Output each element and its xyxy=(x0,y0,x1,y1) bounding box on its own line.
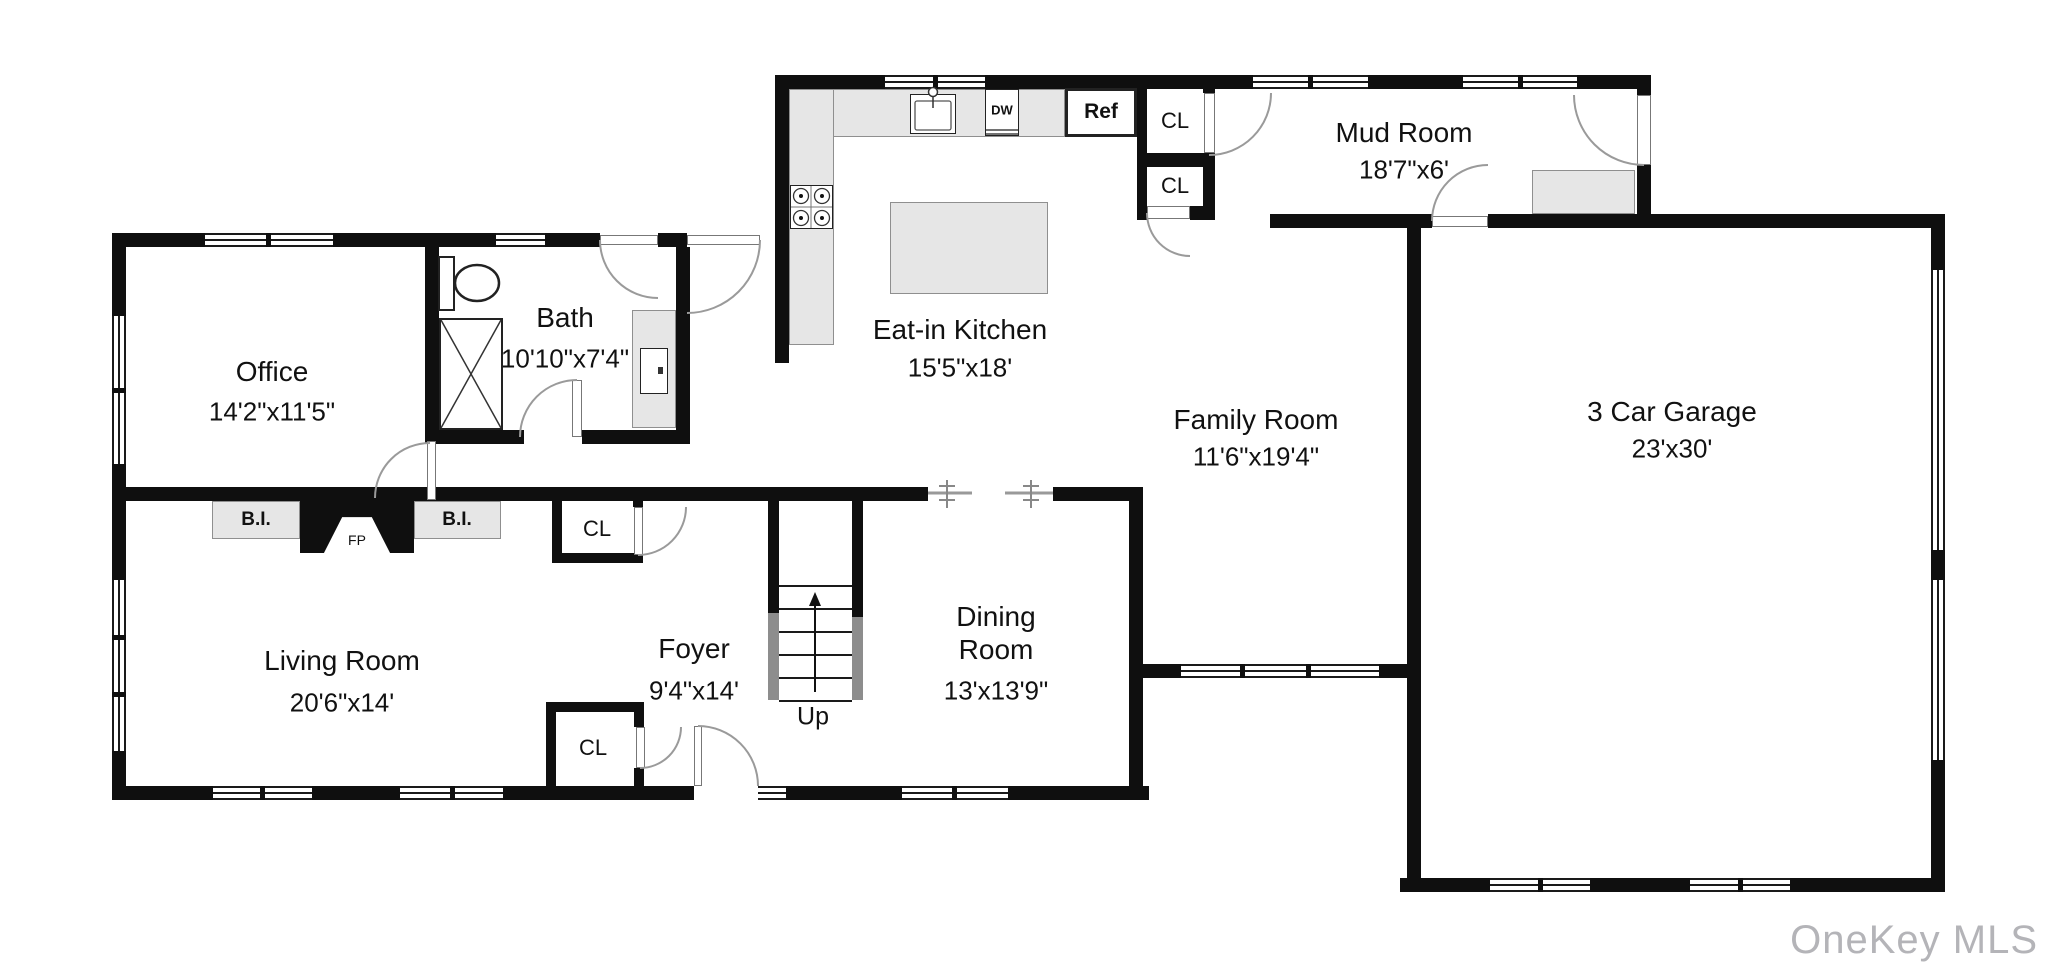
window-divider xyxy=(1240,664,1245,678)
closet-wall xyxy=(634,702,644,727)
window-divider xyxy=(1308,75,1313,89)
stair-wall xyxy=(768,501,779,613)
wall xyxy=(1129,487,1143,800)
door-swing-arc xyxy=(640,727,681,768)
room-dims-office: 14'2"x11'5" xyxy=(209,397,335,428)
door-swing-arc xyxy=(1574,95,1644,165)
room-label-family: Family Room xyxy=(1174,404,1339,436)
window-divider xyxy=(1518,75,1523,89)
wall xyxy=(1407,214,1421,892)
room-dims-bath: 10'10"x7'4" xyxy=(501,344,629,375)
door-leaf xyxy=(634,507,643,555)
stairs xyxy=(779,585,852,702)
window xyxy=(112,580,126,751)
door-leaf xyxy=(636,727,645,768)
closet-wall xyxy=(552,553,643,563)
window-divider xyxy=(450,786,455,800)
stair-railing xyxy=(852,617,863,700)
cased-opening xyxy=(928,487,1053,501)
room-label-dining2: Room xyxy=(959,634,1034,666)
door-swing-arc xyxy=(638,507,686,555)
room-label-dining: Dining xyxy=(956,601,1035,633)
room-label-living: Living Room xyxy=(264,645,420,677)
window-divider xyxy=(1538,878,1543,892)
closet-wall xyxy=(634,768,644,786)
window-divider xyxy=(952,786,957,800)
front-door-leaf xyxy=(694,726,702,786)
door-opening xyxy=(694,786,758,800)
sink xyxy=(910,94,956,134)
window xyxy=(1181,664,1379,678)
window-divider xyxy=(260,786,265,800)
toilet-tank xyxy=(439,257,454,310)
door-swing-arc xyxy=(698,726,758,786)
room-dims-kitchen: 15'5"x18' xyxy=(908,353,1012,384)
room-label-foyer: Foyer xyxy=(658,633,730,665)
door-leaf xyxy=(1147,206,1190,219)
room-label-office: Office xyxy=(236,356,309,388)
stairs-up-label: Up xyxy=(797,703,829,732)
door-leaf xyxy=(1204,93,1215,153)
door-swing-arc xyxy=(1209,93,1271,155)
dishwasher-label: DW xyxy=(991,103,1013,118)
room-label-kitchen: Eat-in Kitchen xyxy=(873,314,1047,346)
room-label-garage: 3 Car Garage xyxy=(1587,396,1757,428)
door-leaf xyxy=(427,441,436,500)
wall xyxy=(1270,214,1945,228)
window-divider xyxy=(1738,878,1743,892)
window xyxy=(1931,580,1945,760)
room-dims-foyer: 9'4"x14' xyxy=(649,676,739,707)
closet-label: CL xyxy=(583,516,611,542)
fireplace-label: FP xyxy=(348,532,366,548)
plan-symbols xyxy=(0,0,2048,966)
watermark: OneKey MLS xyxy=(1790,918,2038,963)
door-swing-arc xyxy=(520,380,577,437)
room-dims-family: 11'6"x19'4" xyxy=(1193,442,1319,473)
window-divider xyxy=(112,635,126,640)
floor-plan: Office 14'2"x11'5" Bath 10'10"x7'4" Eat-… xyxy=(0,0,2048,966)
window xyxy=(1931,270,1945,550)
window-divider xyxy=(112,388,126,393)
shower xyxy=(439,318,503,430)
door-swing-arc xyxy=(687,240,760,313)
cooktop xyxy=(790,185,833,229)
stair-wall xyxy=(852,501,863,617)
door-leaf xyxy=(1637,95,1651,165)
kitchen-island xyxy=(890,202,1048,294)
bath-vanity-sink xyxy=(640,348,668,394)
door-leaf xyxy=(572,380,582,437)
room-dims-dining: 13'x13'9" xyxy=(944,676,1048,707)
closet-label: CL xyxy=(1161,173,1189,199)
closet-wall xyxy=(546,702,556,786)
room-dims-living: 20'6"x14' xyxy=(290,688,394,719)
closet-label: CL xyxy=(1161,108,1189,134)
door-leaf xyxy=(1432,216,1488,227)
window-divider xyxy=(933,75,938,89)
built-in-label: B.I. xyxy=(442,509,472,531)
window-divider xyxy=(266,233,271,247)
wall xyxy=(425,247,439,444)
window xyxy=(496,233,545,247)
mudroom-bench xyxy=(1532,170,1635,214)
window-divider xyxy=(1306,664,1311,678)
refrigerator-label: Ref xyxy=(1084,100,1118,124)
room-label-mudroom: Mud Room xyxy=(1336,117,1473,149)
wall xyxy=(775,75,789,363)
stair-railing xyxy=(768,613,779,700)
built-in-label: B.I. xyxy=(241,509,271,531)
toilet-bowl xyxy=(455,265,499,301)
room-dims-garage: 23'x30' xyxy=(1632,434,1713,465)
door-swing-arc xyxy=(600,240,658,298)
window-sidelight xyxy=(758,786,786,800)
room-label-bath: Bath xyxy=(536,302,594,334)
wall xyxy=(1137,153,1215,167)
window-divider xyxy=(112,692,126,697)
room-dims-mudroom: 18'7"x6' xyxy=(1359,155,1449,186)
door-leaf xyxy=(600,235,658,245)
door-leaf xyxy=(687,235,760,245)
wall xyxy=(1400,878,1945,892)
closet-label: CL xyxy=(579,735,607,761)
wall xyxy=(676,247,690,444)
closet-wall xyxy=(546,702,644,712)
